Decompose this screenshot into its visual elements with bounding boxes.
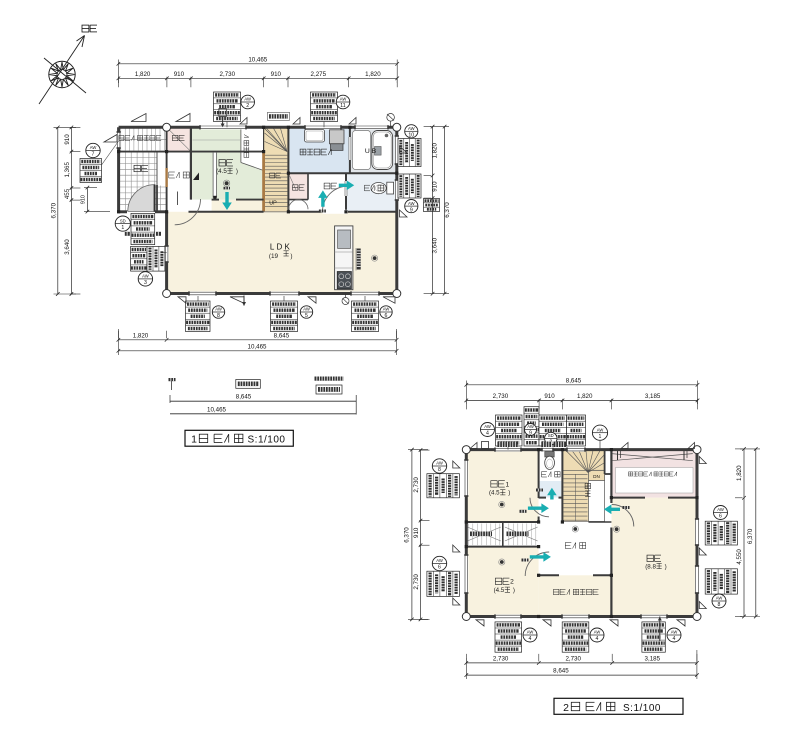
svg-text:2,730: 2,730	[413, 574, 420, 590]
svg-text:1,820: 1,820	[577, 393, 593, 400]
svg-text:910: 910	[413, 527, 420, 538]
svg-text:S:1/100: S:1/100	[248, 435, 286, 446]
svg-text:): )	[290, 253, 292, 260]
svg-text:DN: DN	[593, 474, 600, 479]
svg-text:AW: AW	[215, 307, 222, 312]
svg-text:6: 6	[385, 313, 388, 319]
svg-text:AW: AW	[527, 630, 534, 635]
svg-text:AW: AW	[408, 126, 415, 131]
svg-text:1,820: 1,820	[133, 333, 149, 340]
svg-text:SD: SD	[120, 218, 126, 223]
svg-text:AW: AW	[340, 97, 347, 102]
svg-text:9: 9	[529, 431, 532, 437]
svg-text:AW: AW	[527, 424, 534, 429]
svg-text:2: 2	[246, 103, 249, 109]
svg-text:10,465: 10,465	[248, 343, 267, 350]
svg-text:2: 2	[510, 579, 514, 586]
svg-text:6,370: 6,370	[747, 528, 754, 544]
svg-text:(8.8: (8.8	[645, 563, 656, 570]
svg-text:2,275: 2,275	[311, 71, 327, 78]
svg-text:910: 910	[81, 195, 87, 204]
svg-text:AW: AW	[594, 630, 601, 635]
svg-text:910: 910	[544, 393, 555, 400]
svg-text:6: 6	[438, 565, 441, 571]
svg-text:4: 4	[529, 636, 532, 642]
svg-text:UP: UP	[269, 201, 277, 207]
svg-text:6,370: 6,370	[50, 202, 57, 218]
svg-text:AW: AW	[597, 427, 604, 432]
svg-text:AW: AW	[436, 558, 443, 563]
svg-text:1: 1	[599, 434, 602, 440]
svg-text:): )	[665, 563, 667, 570]
svg-text:AW: AW	[244, 97, 251, 102]
svg-text:AW: AW	[90, 145, 97, 150]
svg-text:2,730: 2,730	[413, 477, 420, 493]
svg-text:2: 2	[563, 702, 569, 714]
svg-text:AW: AW	[436, 461, 443, 466]
svg-text:6,370: 6,370	[403, 527, 410, 543]
svg-text:1,820: 1,820	[431, 142, 438, 158]
svg-text:8: 8	[438, 467, 441, 473]
svg-text:): )	[513, 587, 515, 594]
svg-text:U B: U B	[365, 148, 377, 155]
svg-text:1,365: 1,365	[64, 161, 71, 177]
svg-text:1: 1	[121, 225, 124, 231]
svg-text:LDK: LDK	[270, 243, 292, 252]
svg-text:455: 455	[64, 188, 71, 199]
svg-text:(19: (19	[269, 253, 279, 260]
svg-text:SD: SD	[548, 433, 554, 438]
svg-text:3,185: 3,185	[645, 393, 661, 400]
svg-text:2,730: 2,730	[565, 656, 581, 663]
svg-text:3,640: 3,640	[64, 239, 71, 255]
svg-text:910: 910	[174, 71, 185, 78]
svg-text:910: 910	[431, 181, 438, 192]
svg-text:1,820: 1,820	[135, 71, 151, 78]
svg-text:AW: AW	[142, 274, 149, 279]
svg-text:1: 1	[505, 481, 509, 488]
svg-text:(4.5: (4.5	[489, 490, 500, 497]
svg-text:4: 4	[673, 636, 676, 642]
svg-text:8,645: 8,645	[566, 377, 582, 384]
svg-text:3,185: 3,185	[645, 656, 661, 663]
svg-text:(4.5: (4.5	[216, 168, 227, 175]
svg-text:AW: AW	[671, 630, 678, 635]
svg-text:10: 10	[408, 133, 414, 139]
svg-text:AW: AW	[484, 424, 491, 429]
svg-text:6,370: 6,370	[444, 202, 451, 218]
svg-text:S:1/100: S:1/100	[623, 703, 661, 714]
svg-text:1: 1	[191, 434, 197, 446]
svg-text:1,820: 1,820	[736, 465, 743, 481]
svg-text:AW: AW	[716, 596, 723, 601]
svg-text:4: 4	[596, 636, 599, 642]
svg-text:8,645: 8,645	[274, 333, 290, 340]
svg-text:2,730: 2,730	[220, 71, 236, 78]
svg-text:7: 7	[92, 152, 95, 158]
svg-text:(4.5: (4.5	[494, 587, 505, 594]
svg-text:910: 910	[271, 71, 282, 78]
svg-text:1,820: 1,820	[365, 71, 381, 78]
svg-text:10,465: 10,465	[248, 56, 267, 63]
svg-text:5: 5	[305, 313, 308, 319]
svg-text:AW: AW	[717, 507, 724, 512]
svg-text:): )	[508, 490, 510, 497]
svg-text:910: 910	[64, 134, 71, 145]
svg-text:8: 8	[718, 602, 721, 608]
svg-text:AW: AW	[303, 307, 310, 312]
svg-text:10,465: 10,465	[207, 406, 226, 413]
svg-text:2,730: 2,730	[493, 656, 509, 663]
svg-text:8,645: 8,645	[553, 668, 569, 675]
svg-text:8: 8	[217, 313, 220, 319]
svg-text:11: 11	[340, 103, 345, 109]
svg-text:3: 3	[144, 280, 147, 286]
svg-text:4,550: 4,550	[736, 549, 743, 565]
svg-text:AW: AW	[383, 307, 390, 312]
svg-text:4: 4	[486, 431, 489, 437]
svg-text:8,645: 8,645	[236, 394, 252, 401]
svg-text:3,640: 3,640	[431, 237, 438, 253]
svg-text:6: 6	[719, 514, 722, 520]
svg-text:AW: AW	[408, 201, 415, 206]
svg-text:2,730: 2,730	[493, 393, 509, 400]
svg-text:9: 9	[410, 207, 413, 213]
svg-text:): )	[236, 168, 238, 175]
